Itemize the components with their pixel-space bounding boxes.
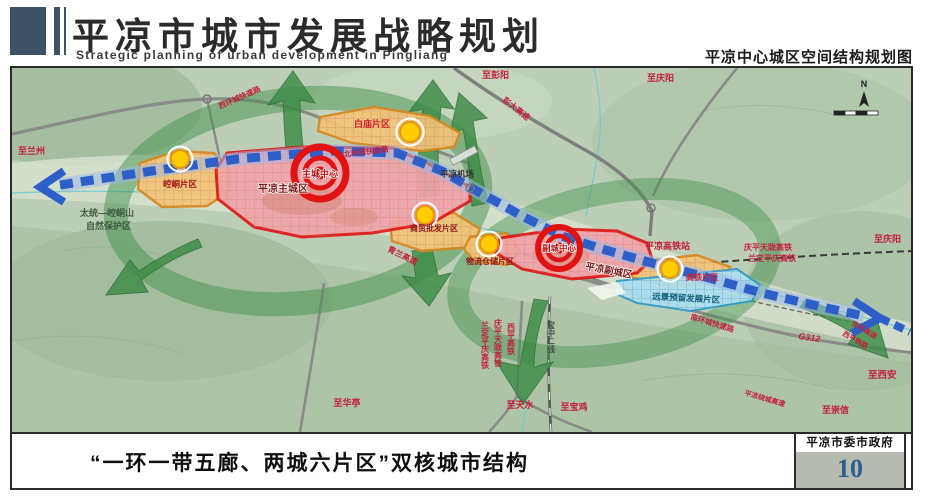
- label-qingping-tianlong-hsr: 庆平天陇高铁: [743, 242, 792, 252]
- zone-label-kongtong: 崆峒片区: [163, 179, 198, 189]
- logo-square: [10, 7, 46, 55]
- scale-bar: [834, 111, 878, 115]
- label-nature-reserve-2: 自然保护区: [86, 220, 131, 231]
- zone-label-baimiao: 白庙片区: [354, 118, 390, 129]
- label-to-qingyang-east: 至庆阳: [874, 233, 901, 244]
- label-xiping-hsr-v: 西平高铁: [507, 323, 516, 356]
- label-to-xian: 至西安: [868, 369, 897, 381]
- label-airport: 平凉机场: [440, 169, 475, 179]
- label-to-qingyang-top: 至庆阳: [647, 72, 674, 83]
- label-to-huating: 至华亭: [333, 397, 360, 408]
- page-subtitle-en: Strategic planning of urban development …: [76, 48, 448, 62]
- zone-label-main-center: 主城中心: [302, 168, 338, 179]
- label-hsr-station: 平凉高铁站: [645, 240, 690, 251]
- map-svg: N 至兰州 至彭阳 至庆阳 至庆阳 至西安 至崇信: [12, 68, 911, 432]
- page-number-box: 平凉市委市政府 10: [794, 434, 906, 488]
- zone-label-gaotie: 高铁片区: [686, 272, 718, 282]
- zone-label-main-city: 平凉主城区: [258, 182, 308, 195]
- label-to-chongxin: 至崇信: [822, 404, 849, 415]
- label-qingping-tianlong-hsr-v: 庆平天陇高铁: [493, 318, 503, 368]
- map-frame: N 至兰州 至彭阳 至庆阳 至庆阳 至西安 至崇信: [10, 66, 913, 490]
- authority-label: 平凉市委市政府: [796, 434, 904, 452]
- zone-label-shangmao: 商贸批发片区: [410, 223, 458, 233]
- planning-map: N 至兰州 至彭阳 至庆阳 至庆阳 至西安 至崇信: [12, 68, 911, 434]
- compass-n-label: N: [861, 79, 868, 89]
- logo-bar: [64, 7, 66, 55]
- logo-bar: [54, 7, 60, 55]
- label-to-lanzhou: 至兰州: [18, 145, 45, 156]
- page-number: 10: [796, 452, 904, 488]
- label-to-tianshui: 至天水: [506, 399, 534, 410]
- map-subtitle: 平凉中心城区空间结构规划图: [705, 46, 913, 67]
- label-landing-pingqing-hsr: 兰定平庆高铁: [748, 253, 796, 263]
- structure-caption: “一环一带五廊、两城六片区”双核城市结构: [90, 447, 529, 477]
- zone-label-sub-center: 副城中心: [542, 243, 577, 253]
- planning-document-page: 平凉市城市发展战略规划 Strategic planning of urban …: [0, 0, 925, 500]
- label-landing-pingqing-hsr-v: 兰定平庆高铁: [481, 320, 490, 370]
- label-to-pengyang: 至彭阳: [482, 69, 509, 80]
- label-to-baoji: 至宝鸡: [560, 401, 587, 412]
- zone-label-wuliu: 物流仓储片区: [466, 256, 514, 266]
- label-baozhong-line2: 宝中二线: [547, 320, 556, 354]
- label-nature-reserve-1: 太统—崆峒山: [79, 207, 134, 218]
- footer: “一环一带五廊、两城六片区”双核城市结构 平凉市委市政府 10: [12, 434, 911, 488]
